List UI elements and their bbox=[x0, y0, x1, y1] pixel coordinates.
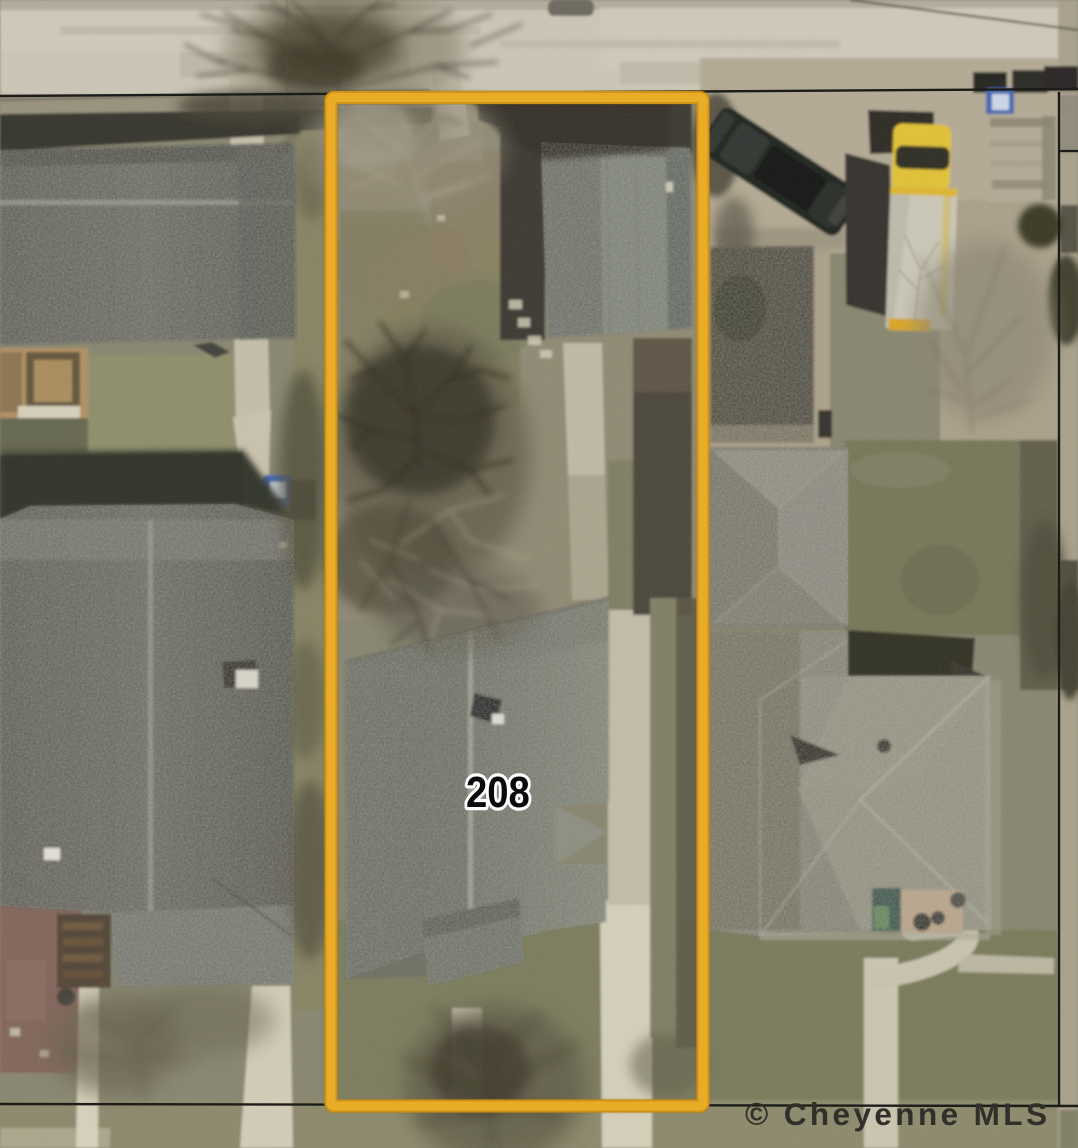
svg-text:© Cheyenne MLS: © Cheyenne MLS bbox=[745, 1096, 1050, 1132]
svg-text:208: 208 bbox=[466, 768, 530, 817]
